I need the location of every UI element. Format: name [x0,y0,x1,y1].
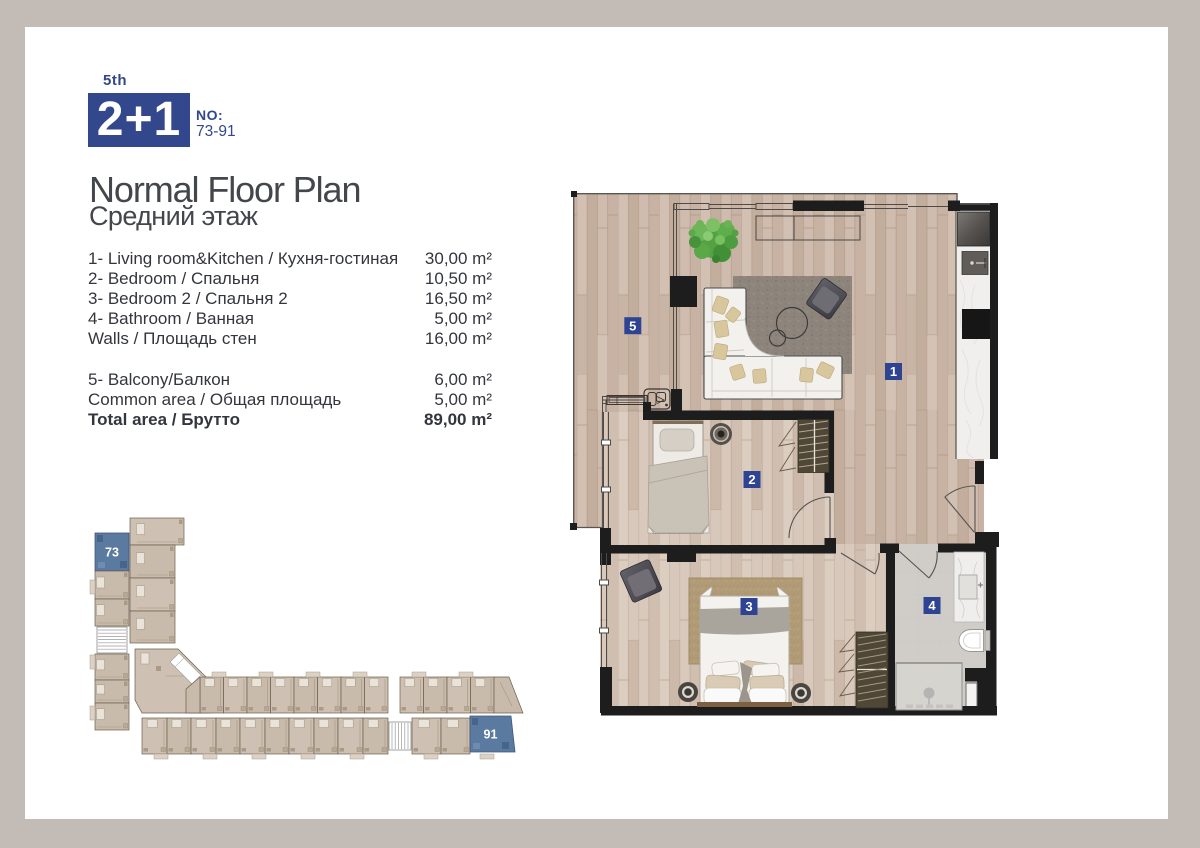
svg-text:1: 1 [890,364,897,379]
svg-text:4: 4 [928,598,936,613]
svg-text:2: 2 [748,472,755,487]
svg-text:73: 73 [105,546,119,560]
svg-text:5: 5 [629,318,636,333]
svg-text:3: 3 [745,599,752,614]
svg-text:91: 91 [484,728,498,742]
